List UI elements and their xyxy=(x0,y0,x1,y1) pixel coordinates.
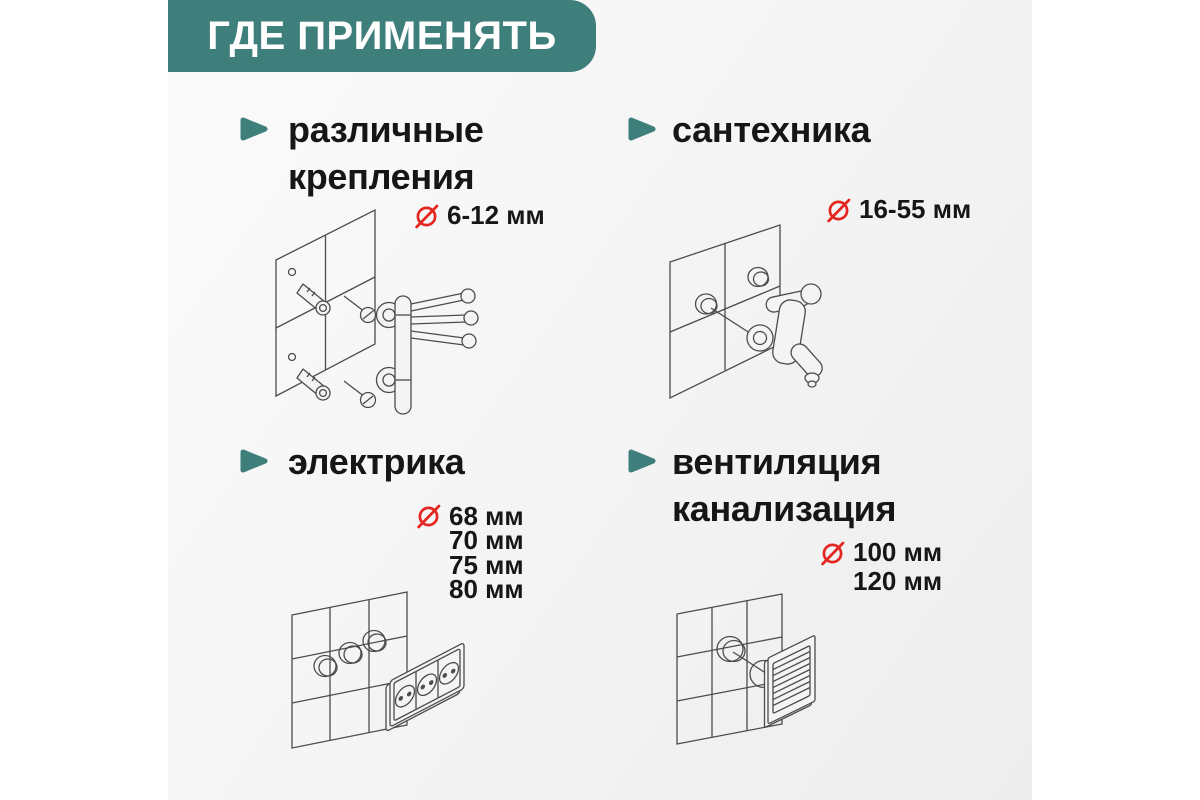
diameter-icon xyxy=(416,503,442,529)
diameter-ventilation: 100 мм 120 мм xyxy=(820,538,942,596)
bullet-arrow-icon xyxy=(628,449,656,473)
plumbing-illustration xyxy=(662,220,857,400)
bullet-arrow-icon xyxy=(628,117,656,141)
diameter-electrics: 68 мм 70 мм 75 мм 80 мм xyxy=(416,504,524,602)
title-bar: ГДЕ ПРИМЕНЯТЬ xyxy=(168,0,596,72)
heading-line: вентиляция xyxy=(672,438,896,485)
diameter-value: 16-55 мм xyxy=(859,194,971,225)
section-heading-electrics: электрика xyxy=(288,438,465,485)
content-card: ГДЕ ПРИМЕНЯТЬ различные крепления 6-12 м… xyxy=(168,0,1032,800)
heading-line: электрика xyxy=(288,438,465,485)
heading-line: различные xyxy=(288,106,484,153)
section-heading-fasteners: различные крепления xyxy=(288,106,484,200)
heading-line: сантехника xyxy=(672,106,870,153)
fasteners-illustration xyxy=(262,208,507,416)
heading-line: крепления xyxy=(288,153,484,200)
page-title: ГДЕ ПРИМЕНЯТЬ xyxy=(207,14,556,59)
diameter-icon xyxy=(820,540,846,566)
bullet-arrow-icon xyxy=(240,449,268,473)
diameter-icon xyxy=(826,197,852,223)
diameter-value: 100 мм xyxy=(853,537,942,568)
section-heading-ventilation: вентиляция канализация xyxy=(672,438,896,532)
section-heading-plumbing: сантехника xyxy=(672,106,870,153)
heading-line: канализация xyxy=(672,485,896,532)
bullet-arrow-icon xyxy=(240,117,268,141)
electrics-illustration xyxy=(256,590,508,775)
ventilation-illustration xyxy=(660,592,910,787)
